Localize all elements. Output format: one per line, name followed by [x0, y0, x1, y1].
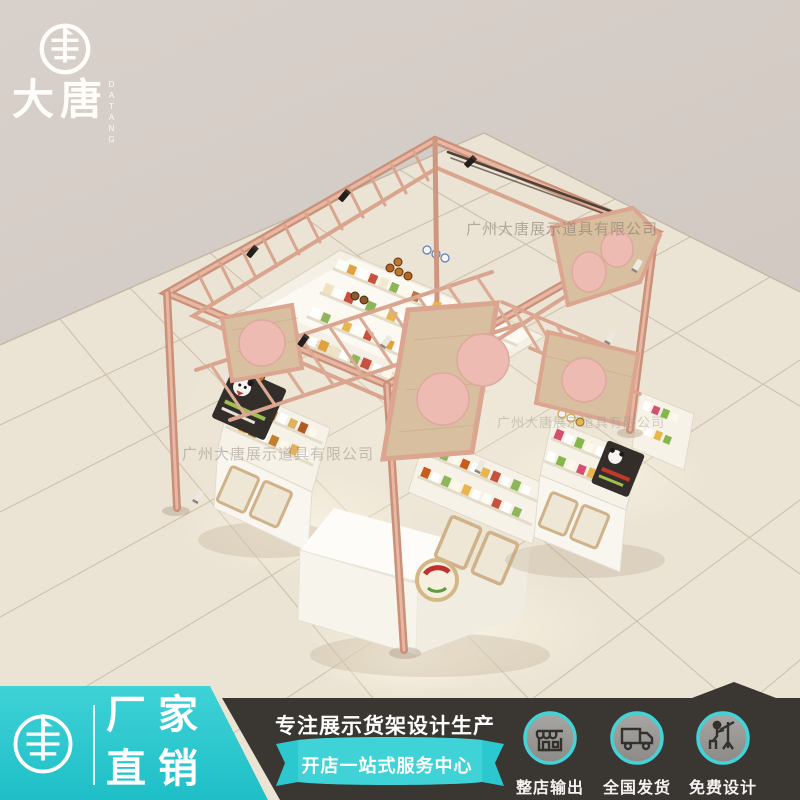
gable-left: [222, 305, 302, 381]
brand-name: 大唐: [12, 74, 108, 126]
banner-notch: [692, 682, 776, 698]
service-label: 免费设计: [678, 774, 768, 798]
factory-direct-line1: 厂家: [106, 688, 210, 742]
banner-subtitle: 开店一站式服务中心: [282, 752, 492, 778]
storefront-icon: [522, 710, 578, 766]
datang-emblem-icon: [10, 711, 76, 777]
service-label: 全国发货: [592, 774, 682, 798]
service-label: 整店输出: [505, 774, 595, 798]
front-cabinet-badge: [417, 560, 457, 600]
service-whole-store: 整店输出: [505, 710, 595, 798]
service-free-design: 免费设计: [678, 710, 768, 798]
designer-icon: [695, 710, 751, 766]
service-nationwide-shipping: 全国发货: [592, 710, 682, 798]
truck-icon: [609, 710, 665, 766]
divider: [93, 705, 95, 785]
factory-direct-line2: 直销: [106, 742, 210, 796]
product-image: 广州大唐展示道具有限公司 广州大唐展示道具有限公司 广州大唐展示道具有限公司 大…: [0, 0, 800, 800]
datang-emblem-icon: [36, 20, 94, 78]
brand-logo: 大唐 DATANG: [8, 8, 128, 138]
factory-direct-text: 厂家 直销: [106, 688, 210, 796]
brand-name-en: DATANG: [107, 80, 116, 146]
promo-banner: 厂家 直销 专注展示货架设计生产 开店一站式服务中心 整店输出: [0, 680, 800, 800]
